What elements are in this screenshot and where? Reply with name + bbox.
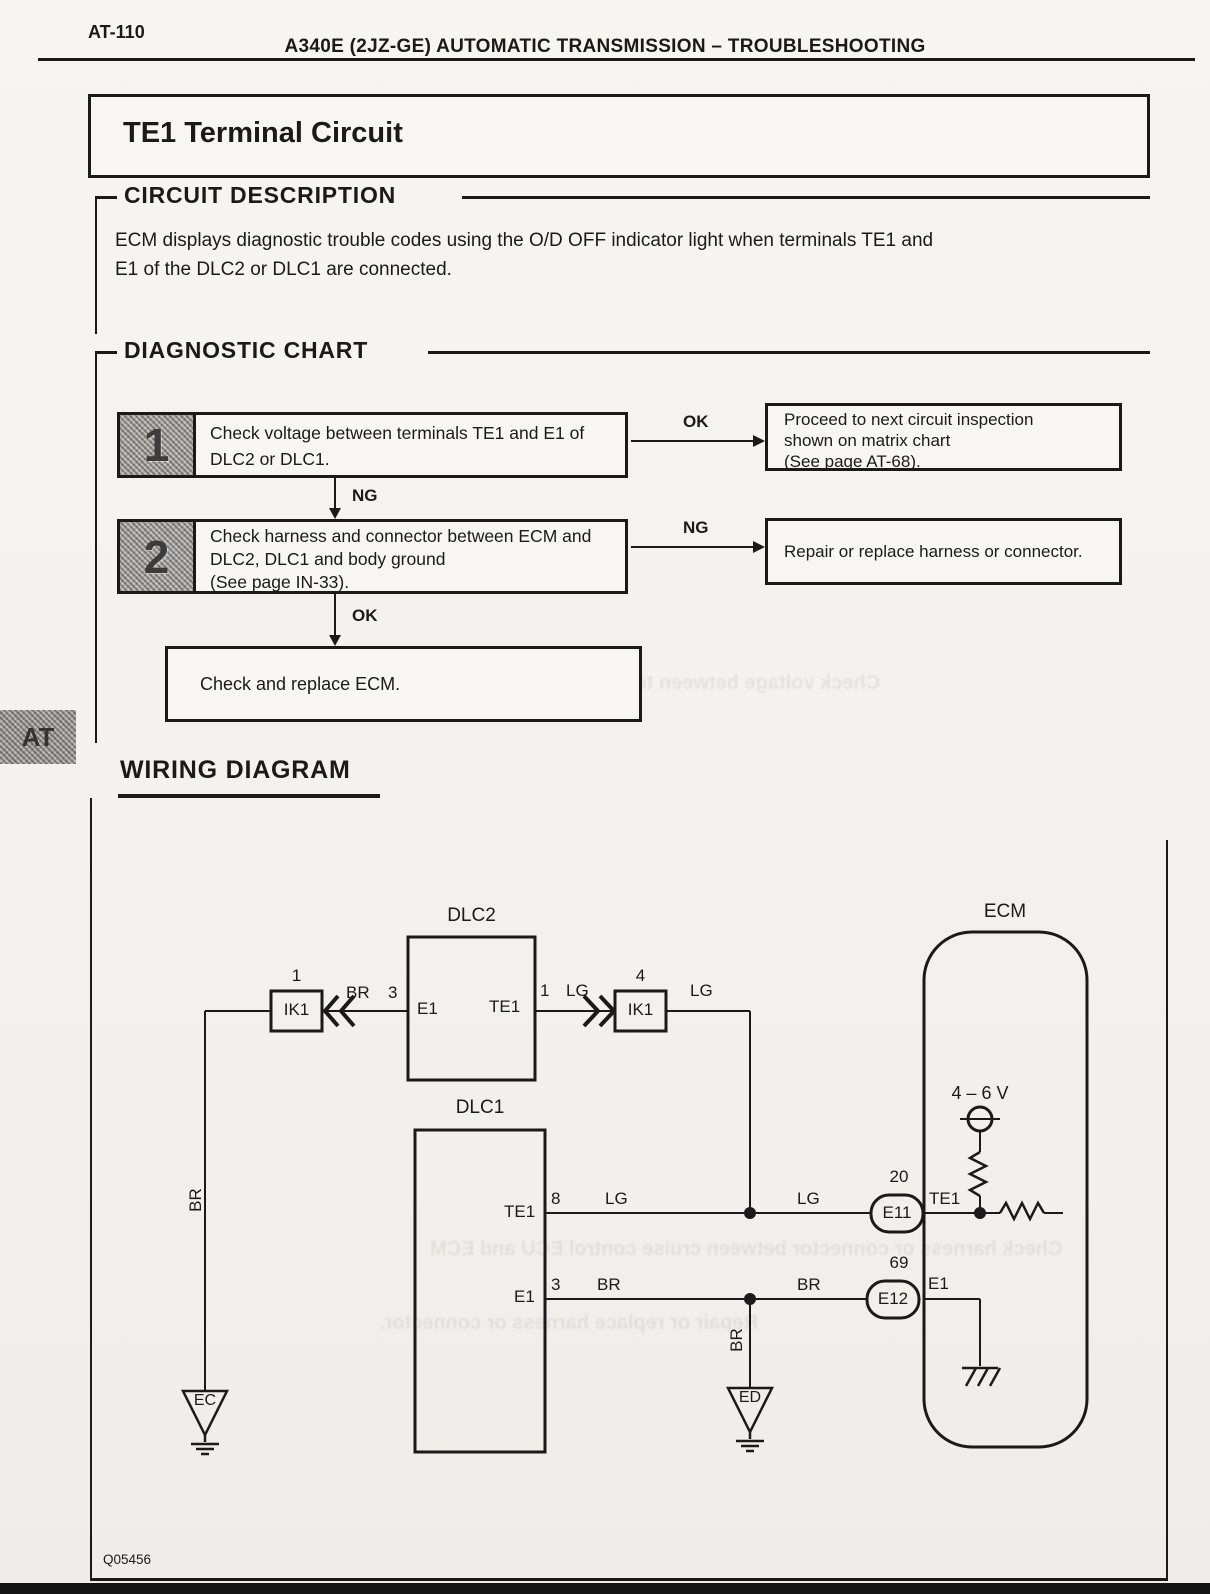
section-bracket xyxy=(95,196,97,334)
wire-color-lg: LG xyxy=(566,981,589,1001)
diagnostic-chart-heading: DIAGNOSTIC CHART xyxy=(124,337,368,364)
dlc2-te1-pin: 1 xyxy=(540,981,549,1001)
ecm-e1-terminal: E1 xyxy=(928,1274,949,1294)
arrow-line xyxy=(334,478,336,512)
dlc2-label: DLC2 xyxy=(408,905,535,927)
final-text: Check and replace ECM. xyxy=(200,674,400,695)
result-2-text: Repair or replace harness or connector. xyxy=(784,542,1083,562)
wire-color-br-vertical: BR xyxy=(186,1185,206,1215)
wiring-schematic xyxy=(0,860,1210,1570)
section-bracket xyxy=(95,351,97,743)
ik1-left-pin: 1 xyxy=(271,966,322,986)
e12-label: E12 xyxy=(867,1289,919,1309)
ik1-left-label: IK1 xyxy=(271,1000,322,1020)
junction-dot xyxy=(744,1293,756,1305)
flow-result-1-box: Proceed to next circuit inspection shown… xyxy=(765,403,1122,471)
header-rule xyxy=(38,58,1195,61)
arrowhead-icon xyxy=(329,508,341,519)
side-tab-label: AT xyxy=(22,722,55,753)
e11-pin: 20 xyxy=(884,1167,914,1187)
dlc1-e1-terminal: E1 xyxy=(514,1287,535,1307)
wiring-section-border-bottom xyxy=(90,1578,1168,1581)
title-box: TE1 Terminal Circuit xyxy=(88,94,1150,178)
e12-pin: 69 xyxy=(884,1253,914,1273)
flow-step-1-box: 1 Check voltage between terminals TE1 an… xyxy=(117,412,628,478)
e11-label: E11 xyxy=(871,1203,923,1223)
junction-dot xyxy=(974,1207,986,1219)
ecm-label: ECM xyxy=(960,901,1050,923)
branch-label-ng: NG xyxy=(683,518,709,538)
branch-label-ok: OK xyxy=(683,412,709,432)
arrow-line xyxy=(631,440,757,442)
junction-dot xyxy=(744,1207,756,1219)
wire-color-br-vertical: BR xyxy=(727,1325,747,1355)
section-bracket xyxy=(95,196,117,199)
step-2-text: Check harness and connector between ECM … xyxy=(210,525,620,594)
wire-color-br: BR xyxy=(797,1275,821,1295)
down-label-ok: OK xyxy=(352,606,378,626)
resistor-vertical-icon xyxy=(970,1152,986,1196)
arrow-line xyxy=(334,594,336,640)
wire-color-lg: LG xyxy=(797,1189,820,1209)
section-bracket xyxy=(95,351,117,354)
page-header-title: A340E (2JZ-GE) AUTOMATIC TRANSMISSION – … xyxy=(180,36,1030,58)
dlc2-e1-terminal: E1 xyxy=(417,999,438,1019)
step-number-tile: 1 xyxy=(120,415,196,475)
wire-color-br: BR xyxy=(346,983,370,1003)
ik1-right-pin: 4 xyxy=(615,966,666,986)
page-code: AT-110 xyxy=(88,22,145,43)
flow-result-2-box: Repair or replace harness or connector. xyxy=(765,518,1122,585)
heading-underline xyxy=(118,794,380,798)
dlc1-te1-terminal: TE1 xyxy=(504,1202,535,1222)
arrowhead-icon xyxy=(329,635,341,646)
manual-page: Check voltage between terminal OD at cru… xyxy=(0,0,1210,1594)
step-number: 1 xyxy=(144,418,170,472)
circuit-description-heading: CIRCUIT DESCRIPTION xyxy=(124,182,396,209)
flow-step-2-box: 2 Check harness and connector between EC… xyxy=(117,519,628,594)
step-number: 2 xyxy=(144,530,170,584)
step-number-tile: 2 xyxy=(120,522,196,591)
dlc1-te1-pin: 8 xyxy=(551,1189,560,1209)
dlc2-te1-terminal: TE1 xyxy=(489,997,520,1017)
voltage-label: 4 – 6 V xyxy=(925,1083,1035,1104)
wire-color-lg: LG xyxy=(605,1189,628,1209)
arrow-line xyxy=(631,546,757,548)
dlc2-e1-pin: 3 xyxy=(388,983,397,1003)
page-bottom-edge xyxy=(0,1583,1210,1594)
chassis-ground-icon xyxy=(962,1368,1000,1386)
arrowhead-icon xyxy=(753,541,765,553)
ecm-te1-terminal: TE1 xyxy=(929,1189,960,1209)
heading-rule xyxy=(428,351,1150,354)
ik1-right-label: IK1 xyxy=(615,1000,666,1020)
side-tab-at: AT xyxy=(0,710,76,764)
step-1-text: Check voltage between terminals TE1 and … xyxy=(210,420,620,472)
ed-ground-label: ED xyxy=(728,1389,772,1407)
arrowhead-icon xyxy=(753,435,765,447)
wiring-diagram-heading: WIRING DIAGRAM xyxy=(120,756,351,785)
ec-ground-label: EC xyxy=(183,1392,227,1410)
circuit-description-body: ECM displays diagnostic trouble codes us… xyxy=(115,226,1125,284)
wire-color-br: BR xyxy=(597,1275,621,1295)
page-title: TE1 Terminal Circuit xyxy=(123,117,403,150)
resistor-horizontal-icon xyxy=(1000,1203,1044,1219)
wire-color-lg: LG xyxy=(690,981,713,1001)
down-label-ng: NG xyxy=(352,486,378,506)
heading-rule xyxy=(462,196,1150,199)
figure-code: Q05456 xyxy=(103,1552,151,1567)
flow-final-box: Check and replace ECM. xyxy=(165,646,642,722)
dlc1-e1-pin: 3 xyxy=(551,1275,560,1295)
dlc1-label: DLC1 xyxy=(415,1097,545,1119)
